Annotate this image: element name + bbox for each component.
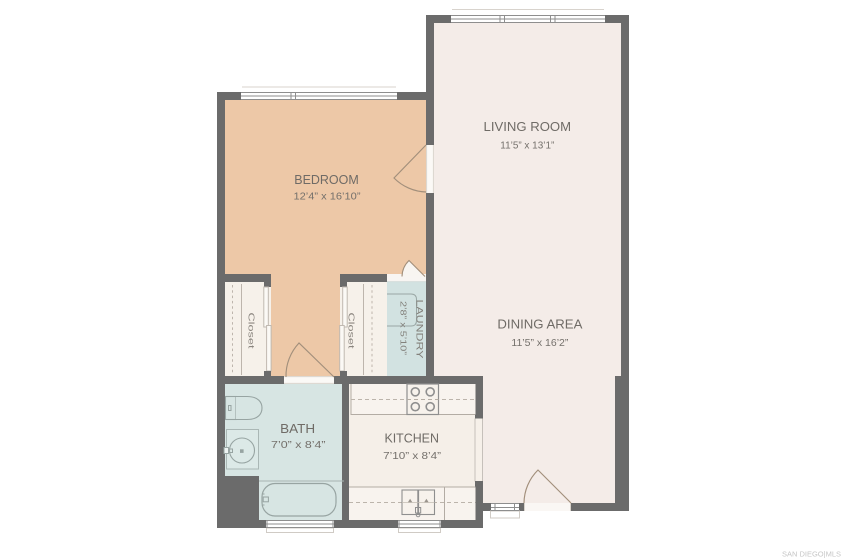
svg-text:BATH: BATH — [280, 421, 315, 436]
svg-text:11’5” x 13’1”: 11’5” x 13’1” — [500, 140, 554, 152]
svg-text:LIVING ROOM: LIVING ROOM — [484, 119, 572, 134]
svg-text:12’4” x 16’10”: 12’4” x 16’10” — [294, 191, 362, 203]
svg-text:DINING AREA: DINING AREA — [497, 317, 582, 332]
svg-text:LAUNDRY: LAUNDRY — [415, 300, 425, 359]
svg-text:BEDROOM: BEDROOM — [294, 172, 359, 187]
svg-text:7’10” x 8’4”: 7’10” x 8’4” — [383, 450, 442, 462]
svg-text:Closet: Closet — [247, 313, 256, 350]
svg-text:KITCHEN: KITCHEN — [384, 431, 439, 446]
svg-text:7’0” x 8’4”: 7’0” x 8’4” — [271, 439, 326, 451]
svg-text:SAN DIEGO|MLS: SAN DIEGO|MLS — [782, 550, 841, 559]
svg-text:11’5” x 16’2”: 11’5” x 16’2” — [511, 337, 568, 349]
svg-text:Closet: Closet — [347, 313, 356, 350]
svg-text:2’8” x 5’10”: 2’8” x 5’10” — [399, 301, 409, 355]
